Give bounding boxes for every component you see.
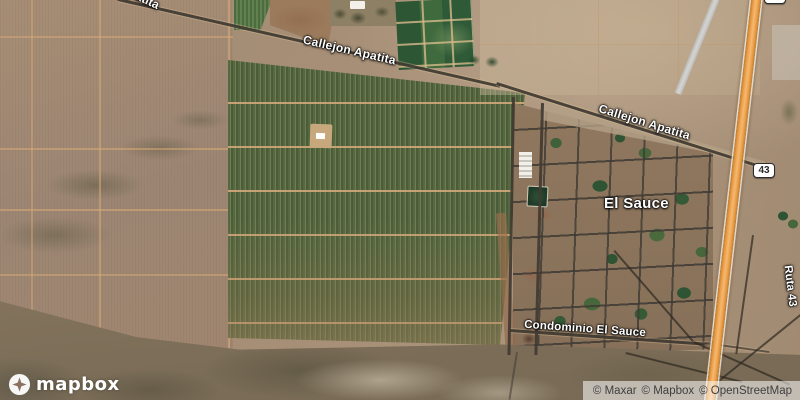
greenhouses (519, 152, 532, 178)
field-boundary-line (735, 235, 754, 354)
mapbox-logo-icon (8, 373, 31, 396)
terrain-olive-patch-east (777, 92, 800, 132)
route-shield-43: 43 (753, 163, 775, 178)
trees-cluster-east (775, 208, 800, 234)
terrain-fields-northeast (480, 0, 760, 95)
terrain-dirt-fields-west (0, 0, 233, 348)
satellite-map-canvas[interactable]: Apatita Callejon Apatita Callejon Apatit… (0, 0, 800, 400)
mapbox-wordmark: mapbox (36, 374, 120, 395)
road-label-ruta-43: Ruta 43 (781, 261, 799, 310)
terrain-crop-field-green (228, 60, 525, 345)
route-shield-43-top-partial: 43 (764, 0, 786, 4)
building-white-roof (350, 1, 365, 9)
mapbox-logo-link[interactable]: mapbox (8, 373, 120, 396)
attribution-mapbox-link[interactable]: © Mapbox (642, 385, 695, 397)
road-label-callejon-apatita-west: Callejon Apatita (302, 32, 398, 67)
trees-cluster (462, 50, 502, 70)
terrain-pale-strip-east (772, 25, 800, 80)
place-label-el-sauce: El Sauce (604, 195, 669, 212)
attribution-maxar-link[interactable]: © Maxar (593, 385, 637, 397)
attribution-openstreetmap-link[interactable]: © OpenStreetMap (699, 385, 792, 397)
field-building (310, 124, 333, 149)
attribution-bar: © Maxar © Mapbox © OpenStreetMap (583, 381, 800, 400)
